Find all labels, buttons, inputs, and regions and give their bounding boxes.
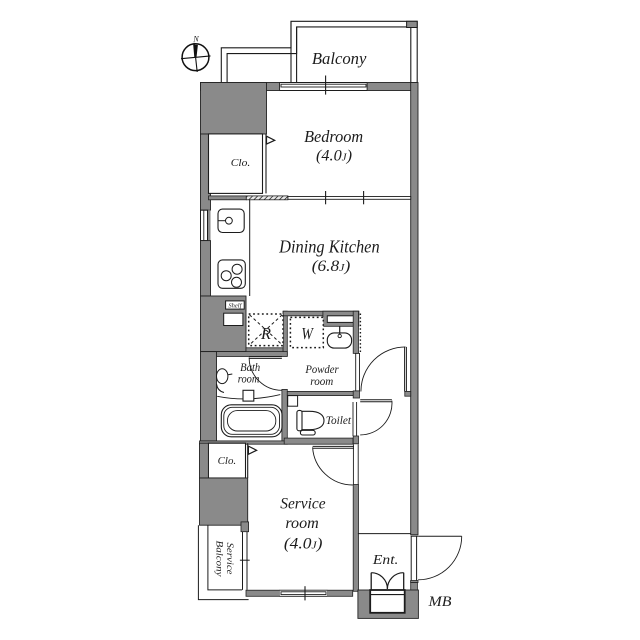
- svg-text:Bedroom: Bedroom: [304, 127, 363, 146]
- svg-text:MB: MB: [427, 594, 451, 610]
- svg-text:room: room: [238, 373, 260, 385]
- svg-text:Ent.: Ent.: [372, 553, 399, 568]
- svg-text:Powder: Powder: [304, 364, 339, 376]
- svg-text:Dining Kitchen: Dining Kitchen: [278, 236, 380, 256]
- svg-text:W: W: [301, 324, 314, 343]
- svg-text:(6.8J): (6.8J): [312, 258, 351, 275]
- svg-text:room: room: [310, 376, 333, 388]
- svg-text:Balcony: Balcony: [312, 49, 367, 68]
- svg-text:N: N: [192, 35, 199, 44]
- svg-text:Clo.: Clo.: [218, 455, 237, 467]
- svg-text:Toilet: Toilet: [326, 415, 352, 427]
- svg-text:Shelf: Shelf: [228, 303, 242, 310]
- svg-text:(4.0J): (4.0J): [316, 148, 352, 165]
- svg-text:Service: Service: [280, 496, 325, 513]
- svg-text:Clo.: Clo.: [231, 157, 251, 169]
- svg-text:R: R: [260, 324, 272, 343]
- svg-text:(4.0J): (4.0J): [284, 535, 323, 552]
- svg-text:Service: Service: [225, 543, 235, 575]
- svg-text:Balcony: Balcony: [215, 541, 225, 577]
- svg-text:room: room: [285, 515, 318, 532]
